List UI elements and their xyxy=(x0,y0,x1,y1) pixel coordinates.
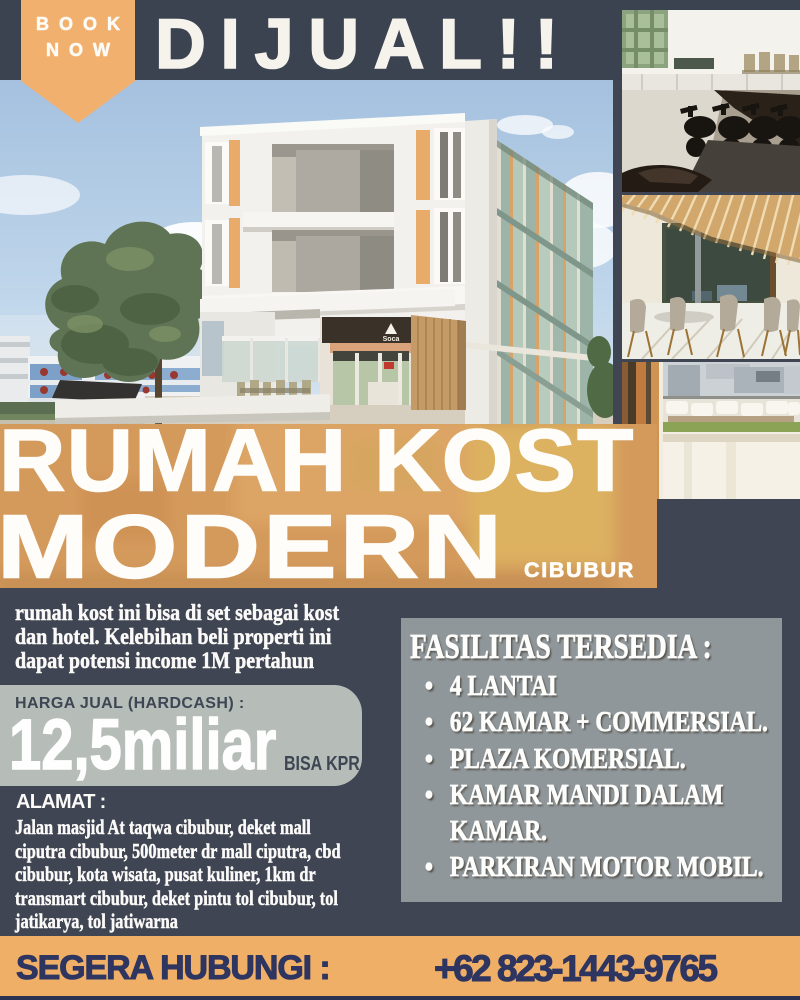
svg-text:Soca: Soca xyxy=(383,336,400,343)
